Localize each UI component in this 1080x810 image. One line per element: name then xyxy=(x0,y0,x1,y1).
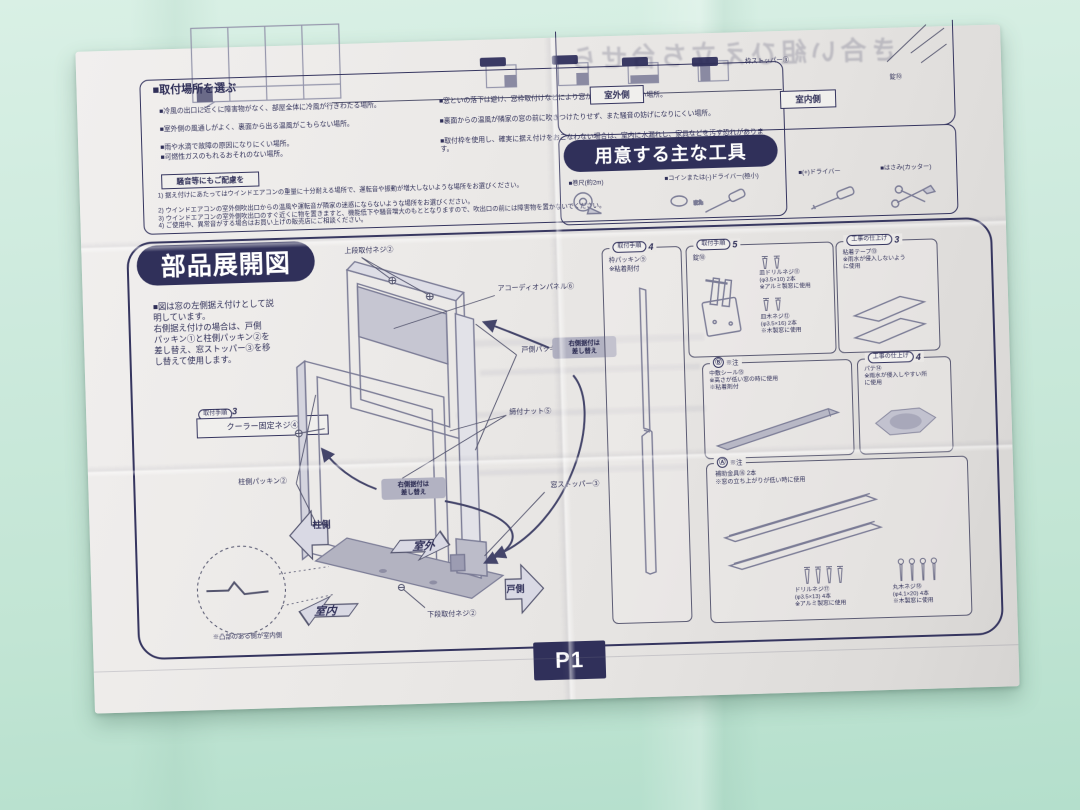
partbox-spacer-seal: Ⓑ※注 中敷シール⑮ ※高さが低い窓の時に使用 ※粘着剤付 xyxy=(702,359,855,459)
tools-title-badge: 用意する主な工具 xyxy=(563,134,778,172)
screw-spec: ドリルネジ⑰ (φ3.5×13) 4本 ※アルミ製窓に使用 xyxy=(795,586,847,609)
lock-illustration xyxy=(693,263,756,351)
outdoor-side-label: 室外側 xyxy=(590,85,645,105)
partbox-frame-packing: 取付手順4 枠パッキン⑨ ※粘着剤付 xyxy=(601,246,692,624)
svg-text:また: また xyxy=(693,200,703,206)
location-bullet: ■冷風の出口に近くに障害物がなく、部屋全体に冷風が行きわたる場所。 xyxy=(159,100,427,116)
screw-spec: 皿木ネジ⑫ (φ3.5×16) 2本 ※木製窓に使用 xyxy=(760,313,801,335)
label-top-screw: 上段取付ネジ② xyxy=(344,247,393,257)
partbox-putty: 工事の仕上げ4 パテ⑭ ※雨水が侵入しやすい所 に使用 xyxy=(857,356,954,455)
location-title: ■取付場所を選ぶ xyxy=(152,84,236,95)
manual-page: ■取付場所を選ぶ ■冷風の出口に近くに障害物がなく、部屋全体に冷風が行きわたる場… xyxy=(75,24,1019,713)
leader-lines xyxy=(836,22,948,85)
tape-sheets-illustration xyxy=(846,292,934,347)
swap-note: 右側据付は 差し替え xyxy=(381,477,446,500)
location-bullet: ■室外側の風通しがよく、裏面から出る温風がこもらない場所。 xyxy=(160,118,428,134)
tool-label: ■(+)ドライバー xyxy=(798,168,841,178)
label-bottom-screw: 下段取付ネジ② xyxy=(427,610,476,620)
arrow-label-pillar: 柱側 xyxy=(312,519,330,531)
tape-measure-icon xyxy=(574,192,602,214)
part-description: 錠⑩ xyxy=(693,254,706,263)
exploded-diagram: 柱側 戸側 室外 室内 xyxy=(141,233,653,658)
tool-label: ■はさみ(カッター) xyxy=(880,164,931,174)
screw-spec: 丸木ネジ⑱ (φ4.1×20) 4本 ※木製窓に使用 xyxy=(893,584,934,606)
previous-section-box: き合い組ひえ立ち台せら 枠ストッパー③ 室外側 室内側 錠⑩ xyxy=(555,20,956,137)
part-description: 補助金具⑯ 2本 ※窓の立ち上がりが低い時に使用 xyxy=(715,469,805,487)
frame-packing-strip xyxy=(603,277,691,619)
label-nut: 締付ナット⑤ xyxy=(509,408,551,418)
partbox-auxiliary-brackets: Ⓐ※注 補助金具⑯ 2本 ※窓の立ち上がりが低い時に使用 ドリルネジ⑰ (φ3.… xyxy=(706,456,973,624)
bracket-bars-illustration xyxy=(718,487,900,578)
partbox-adhesive-tape: 工事の仕上げ3 粘着テープ⑬ ※雨水が侵入しないよう に使用 xyxy=(835,238,940,353)
round-screw-icons xyxy=(896,557,941,584)
part-description: 中敷シール⑮ ※高さが低い窓の時に使用 ※粘着剤付 xyxy=(709,369,778,392)
screw-icons xyxy=(802,564,847,587)
scissors-cutter-icon xyxy=(891,185,935,207)
part-description: 粘着テープ⑬ ※雨水が侵入しないよう に使用 xyxy=(843,248,906,271)
part-description: 枠パッキン⑨ ※粘着剤付 xyxy=(609,256,647,274)
stopper-label: 枠ストッパー③ xyxy=(745,57,789,67)
tool-icons: また xyxy=(567,177,952,222)
coin-flat-screwdriver-icon: また xyxy=(671,188,747,213)
seal-strip-illustration xyxy=(710,396,848,454)
pillar-side-arrow xyxy=(289,511,328,560)
window-type-tag xyxy=(480,57,506,67)
label-stopper: 窓ストッパー③ xyxy=(550,481,599,491)
label-pillar-packing: 柱側パッキン② xyxy=(238,478,287,488)
page-number: P1 xyxy=(533,640,606,680)
part-description: パテ⑭ ※雨水が侵入しやすい所 に使用 xyxy=(864,365,927,388)
arrow-label-door: 戸側 xyxy=(506,583,524,595)
tools-box: 用意する主な工具 ■巻尺(約2m) ■コインまたは(-)ドライバー(極小) ■(… xyxy=(558,124,958,226)
location-bullet: ■可燃性ガスのもれるおそれのない場所。 xyxy=(160,151,287,163)
screw-spec: 皿ドリルネジ⑪ (φ3.5×10) 2本 ※アルミ製窓に使用 xyxy=(759,269,811,292)
partbox-lock: 取付手順5 錠⑩ 皿ドリルネジ⑪ (φ3.5×10) 2本 ※アルミ製窓に使用 … xyxy=(685,241,836,357)
screw-icons xyxy=(760,296,786,313)
manual-page-content: ■取付場所を選ぶ ■冷風の出口に近くに障害物がなく、部屋全体に冷風が行きわたる場… xyxy=(75,24,1019,713)
indoor-side-label: 室内側 xyxy=(780,89,837,109)
noise-notice-title: 騒音等にもご配慮を xyxy=(161,171,259,189)
putty-illustration xyxy=(873,399,938,445)
phillips-screwdriver-icon xyxy=(811,186,855,209)
screw-icons xyxy=(759,254,785,271)
